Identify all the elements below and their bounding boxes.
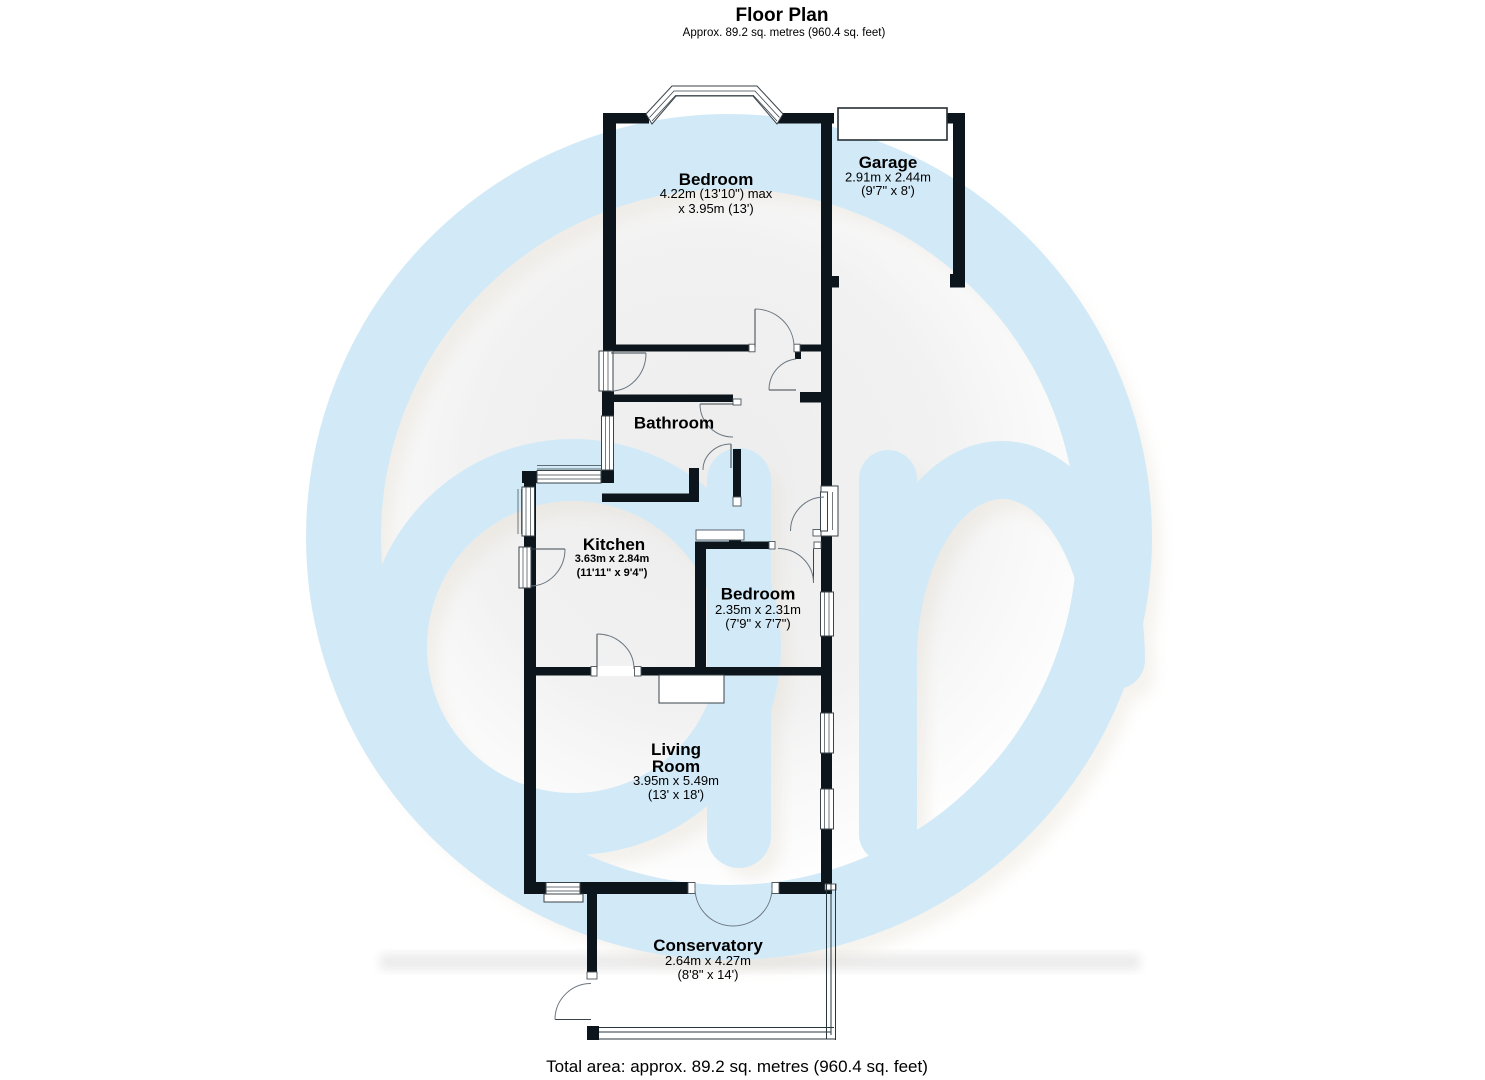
svg-text:Approx. 89.2 sq. metres (960.4: Approx. 89.2 sq. metres (960.4 sq. feet) — [683, 27, 886, 39]
svg-text:(13' x 18'): (13' x 18') — [648, 787, 704, 802]
svg-text:Floor Plan: Floor Plan — [736, 5, 829, 26]
svg-text:(8'8" x 14'): (8'8" x 14') — [678, 967, 739, 982]
svg-text:(11'11" x 9'4"): (11'11" x 9'4") — [577, 567, 648, 579]
svg-text:Total area: approx. 89.2 sq. m: Total area: approx. 89.2 sq. metres (960… — [546, 1057, 928, 1076]
svg-text:(9'7" x 8'): (9'7" x 8') — [861, 183, 915, 198]
svg-text:Bedroom: Bedroom — [721, 585, 796, 604]
svg-text:3.95m x 5.49m: 3.95m x 5.49m — [633, 773, 719, 788]
svg-text:x 3.95m (13'): x 3.95m (13') — [678, 201, 753, 216]
svg-text:Kitchen: Kitchen — [583, 535, 645, 554]
svg-text:3.63m x 2.84m: 3.63m x 2.84m — [575, 553, 650, 565]
svg-text:2.64m x 4.27m: 2.64m x 4.27m — [665, 953, 751, 968]
svg-text:Bathroom: Bathroom — [634, 414, 714, 433]
svg-text:4.22m (13'10") max: 4.22m (13'10") max — [660, 186, 773, 201]
svg-text:(7'9" x 7'7"): (7'9" x 7'7") — [725, 616, 791, 631]
svg-text:2.35m x 2.31m: 2.35m x 2.31m — [715, 602, 801, 617]
